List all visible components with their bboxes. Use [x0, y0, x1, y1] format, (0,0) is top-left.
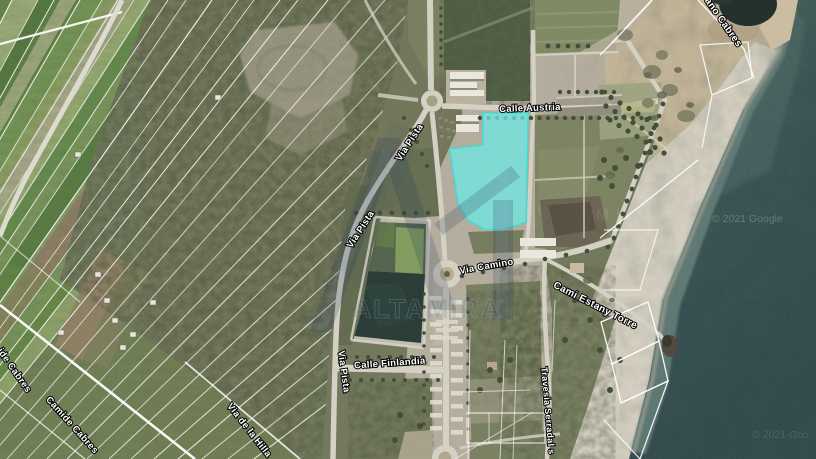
svg-text:© 2021 Goo: © 2021 Goo — [752, 429, 809, 441]
svg-text:Calle Austria: Calle Austria — [499, 102, 561, 115]
svg-text:© 2021 Google: © 2021 Google — [712, 213, 783, 225]
